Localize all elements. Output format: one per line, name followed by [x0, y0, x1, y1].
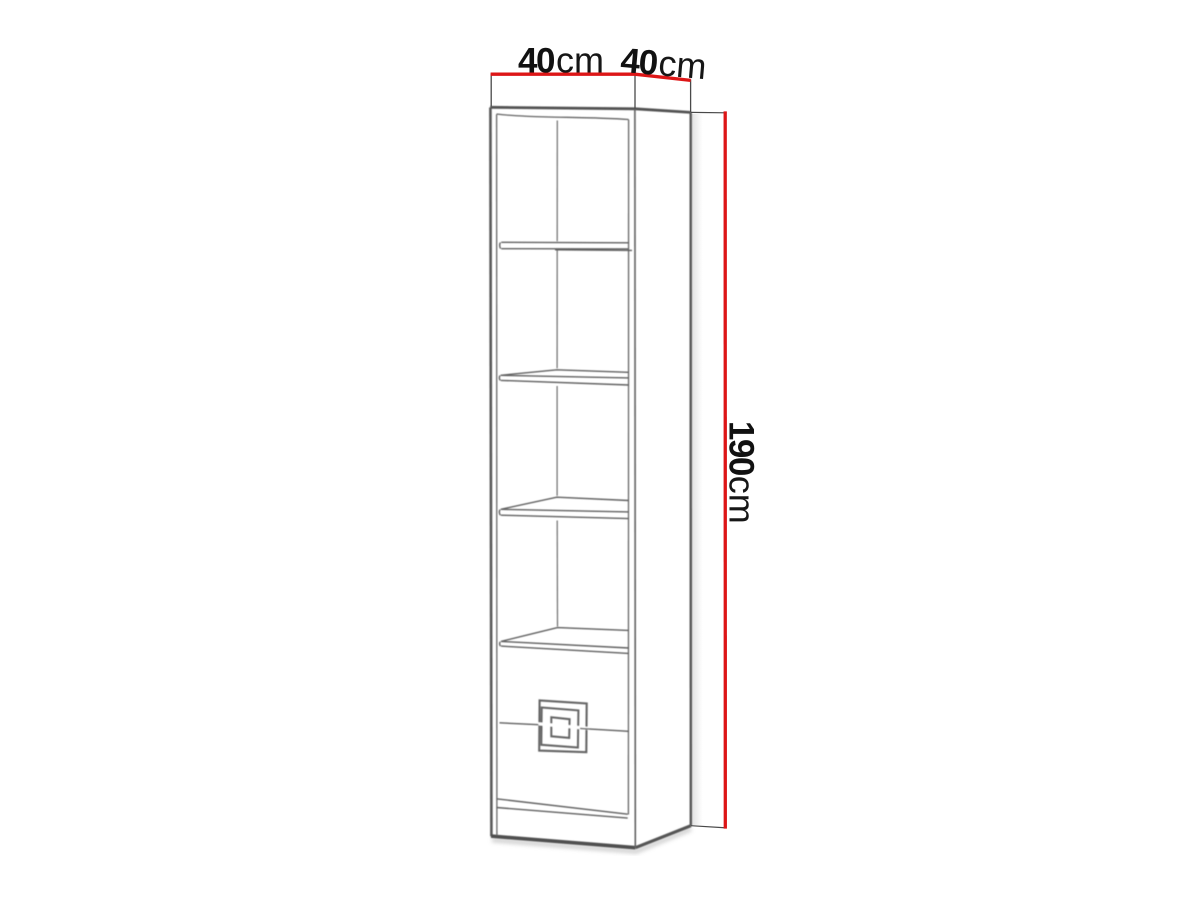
svg-text:40cm: 40cm — [518, 40, 604, 81]
svg-text:40cm: 40cm — [619, 39, 708, 87]
svg-text:190cm: 190cm — [722, 421, 763, 524]
